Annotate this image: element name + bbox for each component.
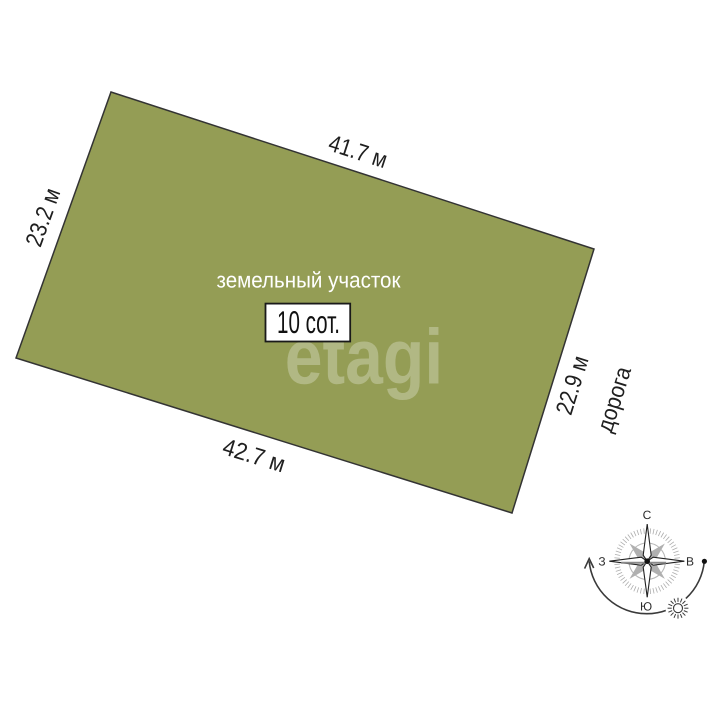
svg-text:С: С xyxy=(643,508,652,522)
svg-text:10 сот.: 10 сот. xyxy=(277,304,340,340)
svg-text:земельный участок: земельный участок xyxy=(217,268,401,293)
svg-text:В: В xyxy=(686,554,694,568)
svg-text:З: З xyxy=(598,554,605,568)
svg-text:Ю: Ю xyxy=(640,599,652,613)
svg-text:дорога: дорога xyxy=(591,363,636,435)
